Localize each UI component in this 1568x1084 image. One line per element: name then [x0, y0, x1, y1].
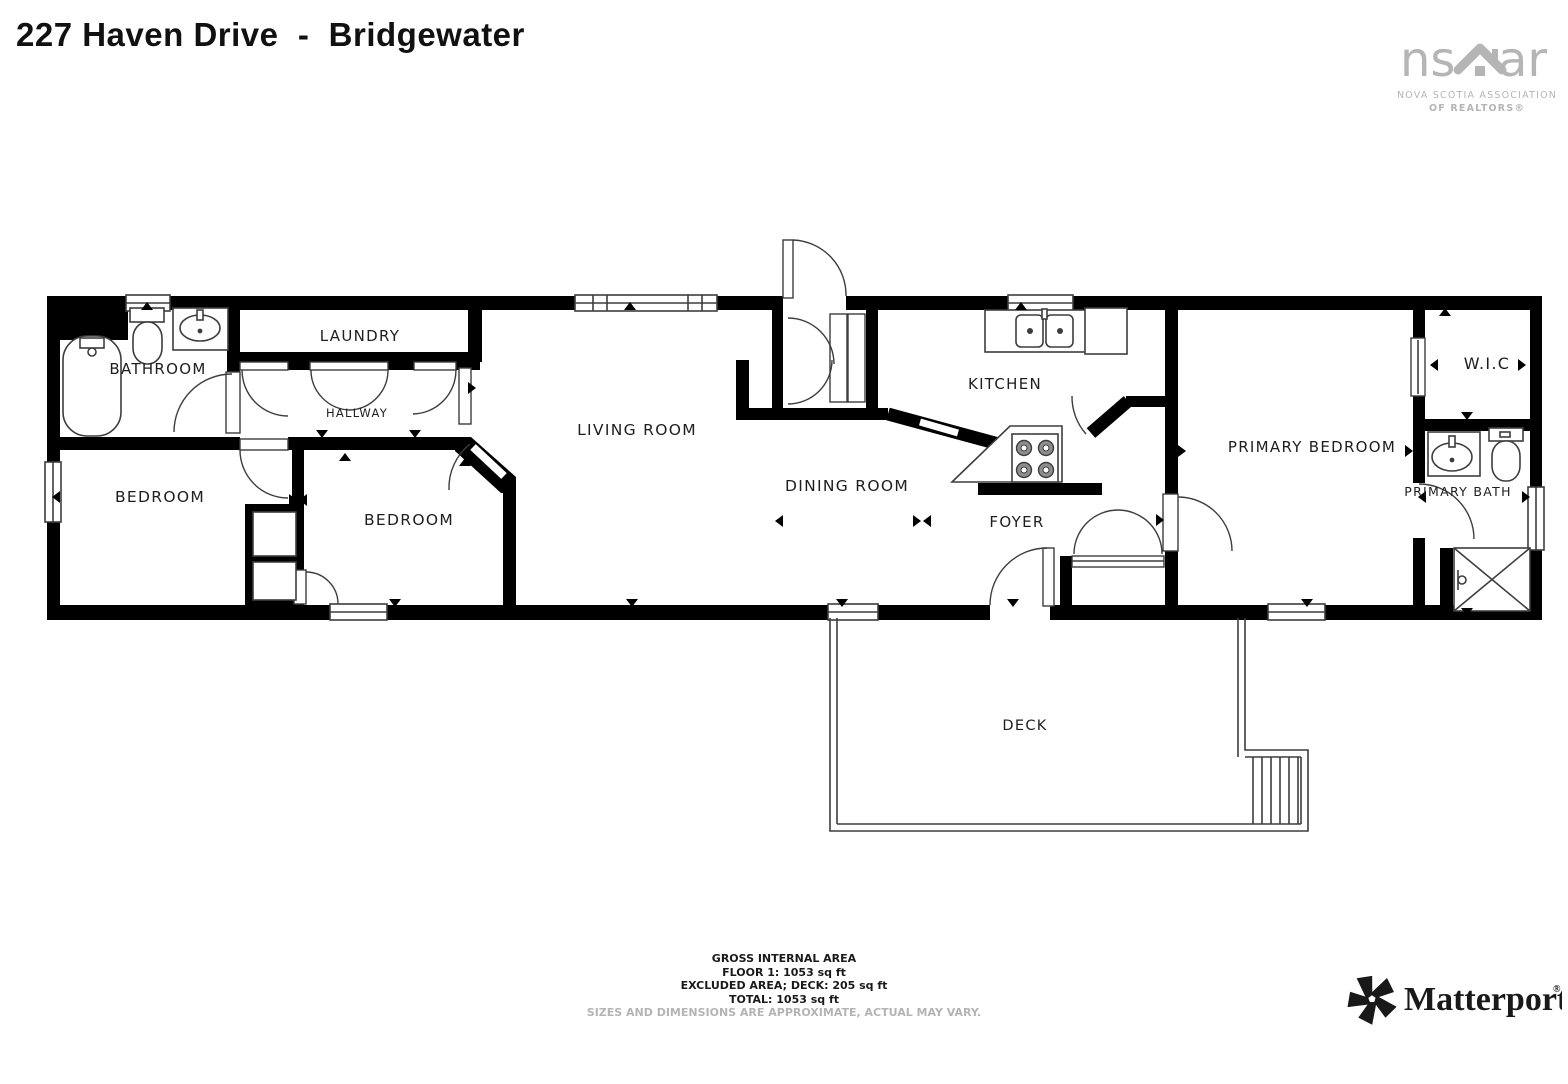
window	[330, 604, 387, 620]
room-label-primary-bath: PRIMARY BATH	[1404, 484, 1512, 499]
area-total: TOTAL: 1053 sq ft	[0, 993, 1568, 1007]
room-label-wic: W.I.C	[1464, 354, 1511, 373]
room-label-primary-bedroom: PRIMARY BEDROOM	[1228, 438, 1396, 456]
kitchen-diagonal-door	[1072, 396, 1086, 434]
room-label-laundry: LAUNDRY	[320, 327, 400, 345]
matterport-reg-mark: ®	[1553, 984, 1561, 995]
window	[1528, 487, 1544, 550]
room-label-foyer: FOYER	[989, 513, 1044, 531]
closet-door	[294, 570, 338, 604]
room-labels: BATHROOM LAUNDRY HALLWAY BEDROOM BEDROOM…	[109, 327, 1511, 734]
toilet-icon	[130, 308, 164, 364]
area-summary: GROSS INTERNAL AREA FLOOR 1: 1053 sq ft …	[0, 952, 1568, 1020]
window	[575, 295, 717, 311]
bathtub-icon	[63, 336, 121, 436]
closet-shelves	[253, 512, 296, 600]
area-summary-heading: GROSS INTERNAL AREA	[0, 952, 1568, 966]
room-label-living-room: LIVING ROOM	[577, 421, 697, 439]
bath-toilet-icon	[1489, 428, 1523, 481]
window	[1268, 604, 1325, 620]
bedroom-left-door	[240, 439, 288, 498]
stairs	[1253, 757, 1298, 824]
primary-bedroom-door	[1163, 494, 1232, 551]
deck-outline	[830, 618, 1308, 831]
area-floor1: FLOOR 1: 1053 sq ft	[0, 966, 1568, 980]
area-excluded: EXCLUDED AREA; DECK: 205 sq ft	[0, 979, 1568, 993]
stove-icon	[1012, 434, 1058, 482]
room-label-deck: DECK	[1002, 718, 1047, 734]
doors	[174, 240, 1474, 606]
window	[45, 462, 61, 522]
room-label-kitchen: KITCHEN	[968, 375, 1042, 393]
matterport-logo: Matterport ®	[1346, 970, 1562, 1028]
room-label-bedroom-middle: BEDROOM	[364, 511, 454, 529]
bath-sink-icon	[1428, 432, 1480, 476]
window	[828, 604, 878, 620]
exterior-door	[783, 240, 846, 298]
room-label-hallway: HALLWAY	[326, 406, 388, 420]
area-disclaimer: SIZES AND DIMENSIONS ARE APPROXIMATE, AC…	[0, 1006, 1568, 1020]
matterport-wordmark: Matterport	[1404, 981, 1562, 1018]
wic-pocket-door	[1411, 338, 1425, 396]
shower-icon	[1454, 548, 1530, 611]
room-label-bedroom-left: BEDROOM	[115, 488, 205, 506]
foyer-closet-doors	[1072, 510, 1164, 567]
pinwheel-icon	[1346, 972, 1399, 1028]
bathroom-door	[174, 372, 240, 433]
deck-door	[990, 548, 1054, 606]
room-label-bathroom: BATHROOM	[109, 360, 206, 378]
floorplan-page: 227 Haven Drive - Bridgewater ns ar NOVA…	[0, 0, 1568, 1084]
floor-plan-drawing: BATHROOM LAUNDRY HALLWAY BEDROOM BEDROOM…	[0, 0, 1568, 1084]
room-label-dining-room: DINING ROOM	[785, 477, 909, 495]
sink-icon	[173, 308, 228, 350]
